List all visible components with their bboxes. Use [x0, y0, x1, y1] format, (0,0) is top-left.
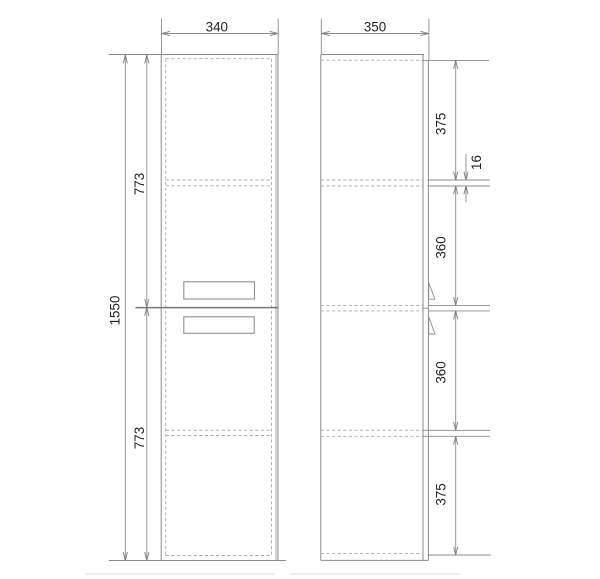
svg-text:360: 360: [434, 236, 449, 258]
svg-text:375: 375: [434, 483, 449, 505]
svg-text:773: 773: [132, 173, 147, 195]
svg-text:350: 350: [364, 19, 386, 34]
svg-text:360: 360: [434, 361, 449, 383]
svg-text:375: 375: [433, 113, 448, 135]
svg-text:1550: 1550: [108, 296, 123, 326]
svg-text:340: 340: [206, 19, 228, 34]
svg-text:16: 16: [469, 155, 484, 170]
svg-text:773: 773: [132, 427, 147, 449]
